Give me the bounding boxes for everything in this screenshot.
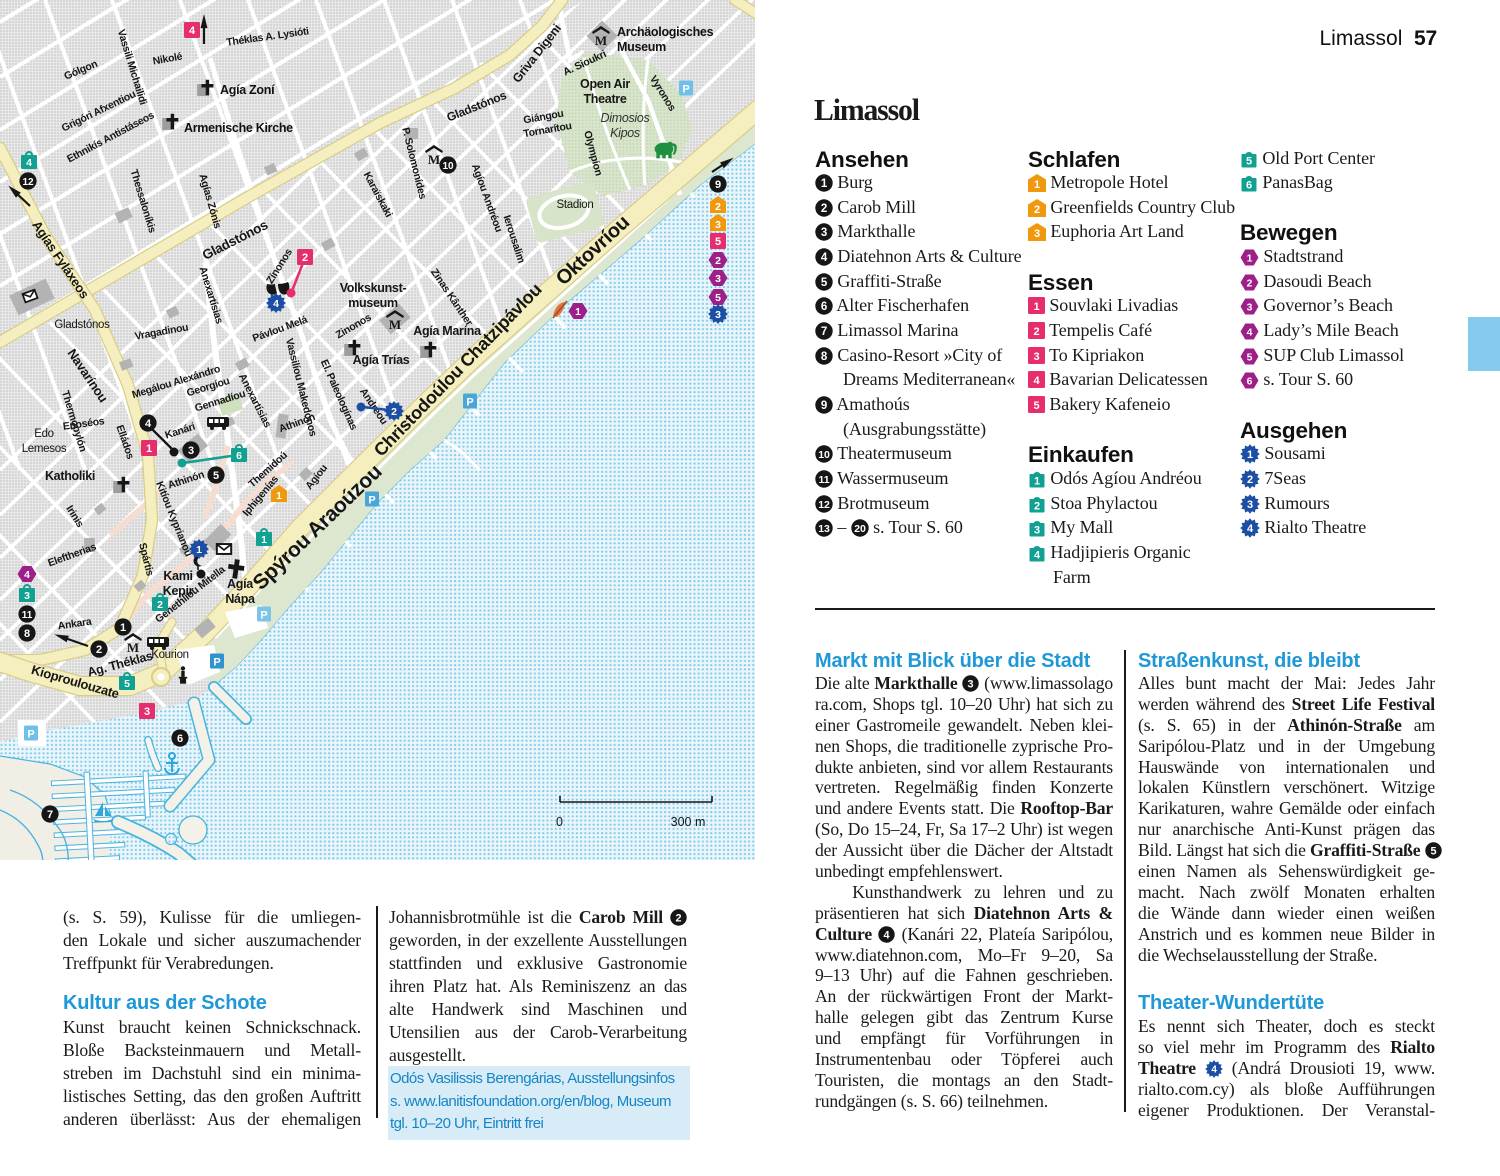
- svg-text:M: M: [595, 33, 607, 48]
- svg-text:4: 4: [884, 929, 890, 941]
- svg-text:M: M: [428, 152, 440, 167]
- svg-text:12: 12: [22, 177, 34, 188]
- svg-text:1: 1: [261, 534, 267, 546]
- svg-text:6: 6: [821, 301, 827, 313]
- svg-text:P: P: [260, 610, 267, 622]
- svg-text:5: 5: [821, 277, 828, 289]
- svg-text:2: 2: [715, 201, 721, 213]
- svg-text:2: 2: [1033, 326, 1039, 338]
- svg-text:Agía Zoní: Agía Zoní: [220, 83, 275, 97]
- svg-text:Volkskunst-: Volkskunst-: [340, 281, 407, 295]
- svg-text:4: 4: [273, 298, 279, 310]
- svg-text:2: 2: [1034, 500, 1040, 512]
- svg-text:10: 10: [818, 449, 830, 461]
- svg-text:Stadion: Stadion: [557, 199, 594, 211]
- svg-text:5: 5: [715, 236, 721, 248]
- svg-text:3: 3: [1034, 228, 1040, 240]
- svg-text:4: 4: [189, 25, 196, 37]
- svg-text:1: 1: [575, 306, 581, 318]
- svg-text:5: 5: [1033, 400, 1039, 412]
- svg-text:1: 1: [1033, 301, 1039, 313]
- svg-text:2: 2: [96, 644, 102, 656]
- svg-text:1: 1: [1247, 253, 1253, 264]
- svg-text:1: 1: [146, 443, 152, 455]
- svg-text:4: 4: [26, 157, 32, 169]
- svg-text:4: 4: [821, 252, 828, 264]
- svg-text:2: 2: [676, 912, 682, 924]
- svg-text:1: 1: [196, 544, 202, 556]
- svg-text:5: 5: [715, 292, 721, 304]
- svg-text:3: 3: [715, 273, 721, 285]
- svg-text:Agía Trías: Agía Trías: [353, 353, 410, 367]
- svg-text:Nápa: Nápa: [225, 592, 256, 606]
- svg-text:P: P: [27, 729, 34, 741]
- svg-text:5: 5: [1246, 155, 1252, 167]
- svg-text:Kipos: Kipos: [610, 126, 640, 140]
- svg-text:Armenische Kirche: Armenische Kirche: [184, 121, 293, 135]
- svg-text:2: 2: [391, 406, 397, 418]
- svg-text:12: 12: [818, 499, 830, 511]
- svg-text:3: 3: [1247, 303, 1253, 314]
- svg-text:4: 4: [24, 569, 30, 581]
- svg-text:9: 9: [715, 179, 721, 191]
- svg-text:Open Air: Open Air: [580, 77, 630, 91]
- svg-text:3: 3: [144, 706, 150, 718]
- svg-text:Kourion: Kourion: [151, 649, 189, 661]
- svg-text:P: P: [682, 84, 689, 96]
- svg-text:Theatre: Theatre: [583, 92, 626, 106]
- svg-text:3: 3: [1247, 499, 1253, 511]
- svg-text:3: 3: [24, 590, 30, 602]
- svg-text:5: 5: [1430, 845, 1436, 857]
- svg-text:Lemesos: Lemesos: [22, 443, 67, 455]
- svg-text:10: 10: [442, 161, 454, 172]
- svg-text:3: 3: [188, 445, 194, 457]
- svg-text:P: P: [368, 495, 375, 507]
- svg-text:6: 6: [236, 450, 242, 462]
- svg-text:Edo: Edo: [34, 428, 54, 440]
- svg-text:Dimosios: Dimosios: [601, 111, 650, 125]
- svg-text:1: 1: [1034, 179, 1040, 191]
- svg-text:3: 3: [1033, 350, 1039, 362]
- svg-text:20: 20: [854, 523, 866, 535]
- svg-text:6: 6: [1247, 377, 1253, 388]
- svg-text:1: 1: [1034, 475, 1040, 487]
- svg-text:Kami: Kami: [163, 569, 192, 583]
- svg-text:P: P: [466, 397, 473, 409]
- svg-text:2: 2: [302, 252, 308, 264]
- svg-text:11: 11: [819, 474, 830, 486]
- svg-text:1: 1: [821, 178, 828, 190]
- svg-text:2: 2: [157, 599, 163, 611]
- svg-text:4: 4: [1033, 375, 1040, 387]
- svg-text:2: 2: [715, 255, 721, 267]
- svg-text:1: 1: [276, 490, 282, 502]
- svg-text:9: 9: [821, 400, 827, 412]
- svg-text:M: M: [127, 640, 139, 655]
- svg-text:1: 1: [120, 622, 126, 634]
- svg-text:Agía Marína: Agía Marína: [413, 324, 482, 338]
- svg-text:3: 3: [968, 678, 974, 690]
- svg-text:7: 7: [47, 809, 53, 821]
- svg-text:3: 3: [715, 219, 721, 231]
- svg-text:11: 11: [22, 610, 33, 621]
- svg-text:8: 8: [24, 628, 30, 640]
- svg-text:13: 13: [818, 523, 830, 535]
- svg-text:5: 5: [1247, 352, 1253, 363]
- svg-text:4: 4: [1247, 327, 1253, 338]
- svg-text:3: 3: [821, 227, 827, 239]
- svg-text:4: 4: [1034, 549, 1041, 561]
- svg-text:Kepir: Kepir: [163, 584, 194, 598]
- svg-text:2: 2: [821, 203, 827, 215]
- svg-text:2: 2: [1247, 278, 1253, 289]
- svg-text:2: 2: [1034, 204, 1040, 216]
- svg-text:3: 3: [1034, 525, 1040, 537]
- svg-text:4: 4: [145, 418, 152, 430]
- svg-text:5: 5: [124, 678, 130, 690]
- svg-text:5: 5: [213, 470, 219, 482]
- svg-text:Agía: Agía: [227, 577, 254, 591]
- svg-text:museum: museum: [348, 296, 398, 310]
- svg-text:1: 1: [1247, 449, 1253, 461]
- svg-text:3: 3: [715, 309, 721, 321]
- svg-text:4: 4: [1247, 523, 1254, 535]
- svg-text:300 m: 300 m: [671, 815, 706, 829]
- svg-text:0: 0: [556, 815, 563, 829]
- svg-text:M: M: [389, 317, 401, 332]
- svg-text:6: 6: [177, 733, 183, 745]
- svg-text:Archäologisches: Archäologisches: [617, 25, 714, 39]
- svg-text:P: P: [213, 657, 220, 669]
- svg-text:7: 7: [821, 326, 827, 338]
- svg-text:8: 8: [821, 351, 828, 363]
- svg-text:Museum: Museum: [617, 40, 666, 54]
- svg-text:Katholiki: Katholiki: [45, 469, 95, 483]
- svg-text:4: 4: [1211, 1064, 1217, 1075]
- svg-text:2: 2: [1247, 474, 1253, 486]
- svg-text:6: 6: [1246, 180, 1252, 192]
- svg-text:Gladstónos: Gladstónos: [54, 319, 110, 331]
